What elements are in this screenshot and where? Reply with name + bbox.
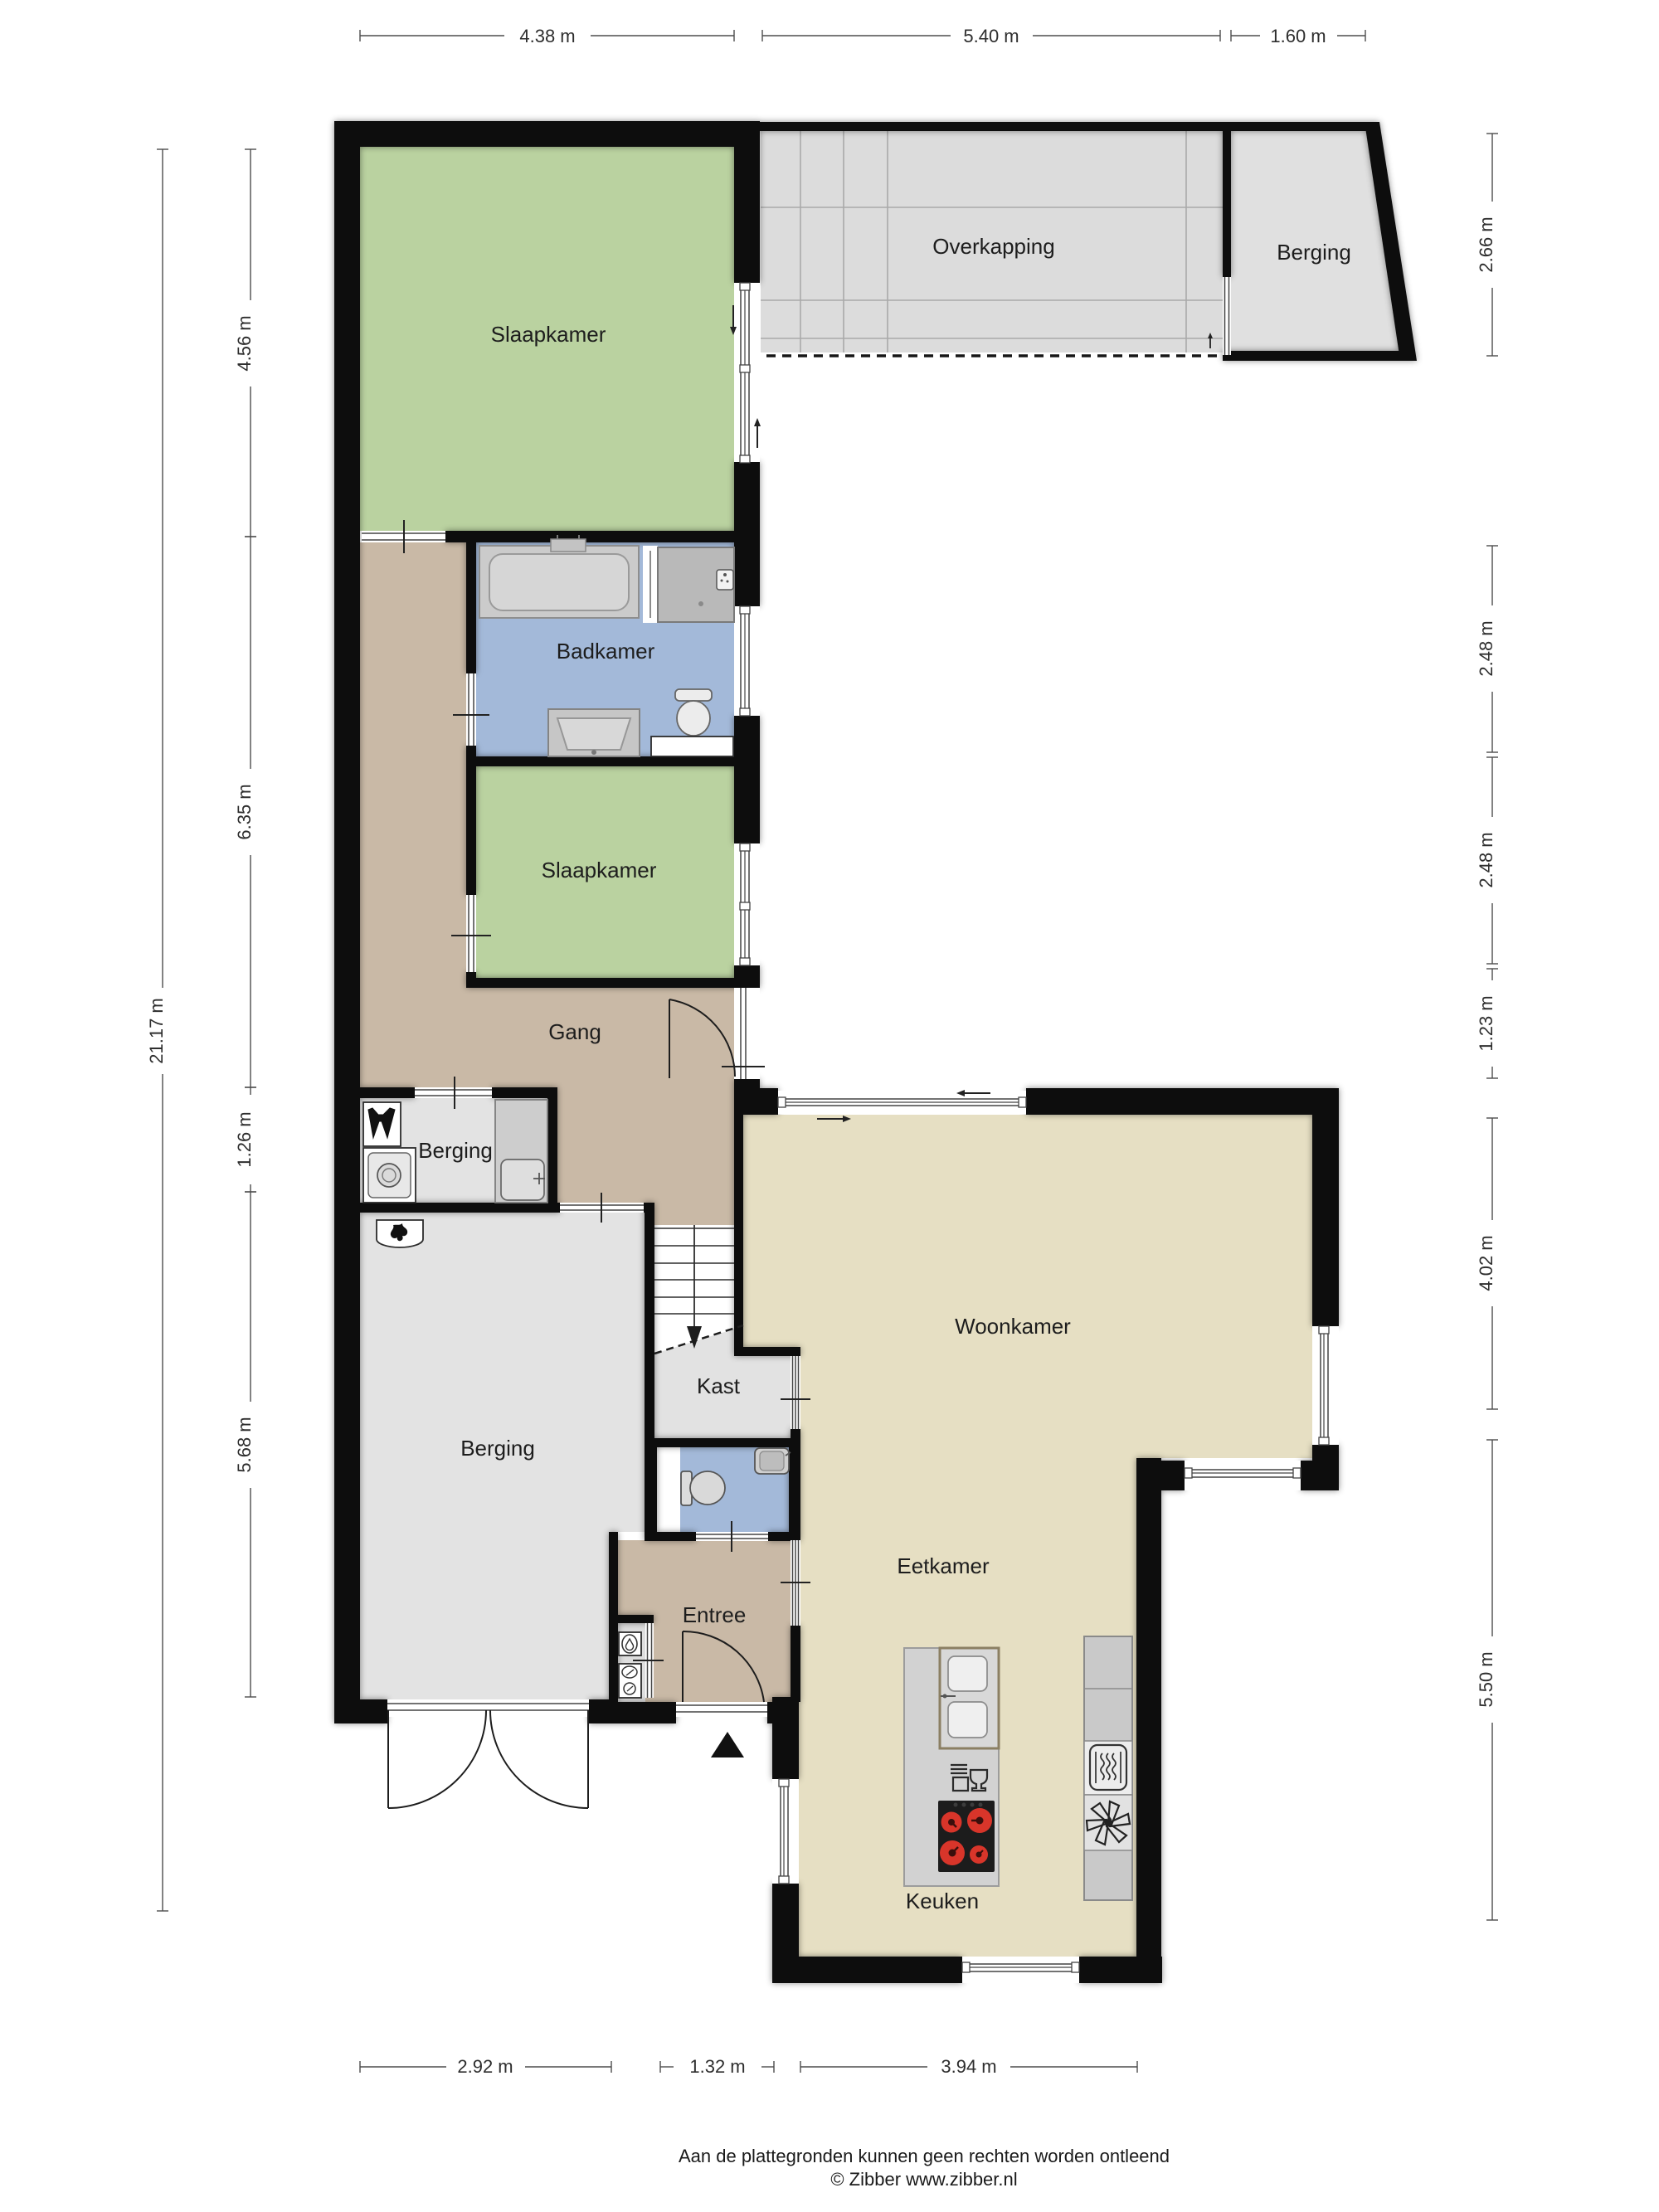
svg-text:Berging: Berging <box>418 1138 493 1163</box>
svg-text:2.92 m: 2.92 m <box>457 2056 513 2077</box>
svg-text:Woonkamer: Woonkamer <box>955 1314 1071 1339</box>
svg-text:Slaapkamer: Slaapkamer <box>542 858 657 882</box>
svg-text:2.66 m: 2.66 m <box>1476 216 1496 272</box>
svg-text:5.50 m: 5.50 m <box>1476 1651 1496 1707</box>
svg-text:6.35 m: 6.35 m <box>234 784 255 839</box>
svg-text:1.32 m: 1.32 m <box>689 2056 745 2077</box>
svg-text:5.40 m: 5.40 m <box>963 26 1019 46</box>
svg-text:4.56 m: 4.56 m <box>234 315 255 371</box>
svg-text:Slaapkamer: Slaapkamer <box>491 322 606 347</box>
svg-text:1.60 m: 1.60 m <box>1270 26 1326 46</box>
svg-text:Aan de plattegronden kunnen ge: Aan de plattegronden kunnen geen rechten… <box>679 2146 1170 2166</box>
svg-text:© Zibber www.zibber.nl: © Zibber www.zibber.nl <box>830 2169 1017 2190</box>
svg-text:Overkapping: Overkapping <box>932 234 1054 259</box>
svg-text:Kast: Kast <box>697 1373 741 1398</box>
svg-text:2.48 m: 2.48 m <box>1476 620 1496 676</box>
svg-text:5.68 m: 5.68 m <box>234 1417 255 1472</box>
svg-text:3.94 m: 3.94 m <box>941 2056 996 2077</box>
svg-text:Entree: Entree <box>683 1602 747 1627</box>
svg-text:Keuken: Keuken <box>906 1889 979 1913</box>
svg-text:4.38 m: 4.38 m <box>519 26 575 46</box>
svg-text:Gang: Gang <box>548 1019 601 1044</box>
svg-text:2.48 m: 2.48 m <box>1476 832 1496 887</box>
svg-text:1.26 m: 1.26 m <box>234 1111 255 1167</box>
svg-text:1.23 m: 1.23 m <box>1476 995 1496 1051</box>
svg-text:21.17 m: 21.17 m <box>146 998 167 1064</box>
svg-text:Berging: Berging <box>1277 240 1351 265</box>
svg-text:4.02 m: 4.02 m <box>1476 1235 1496 1291</box>
svg-text:Badkamer: Badkamer <box>557 639 655 664</box>
svg-text:Eetkamer: Eetkamer <box>897 1553 990 1578</box>
svg-text:Berging: Berging <box>460 1436 535 1461</box>
